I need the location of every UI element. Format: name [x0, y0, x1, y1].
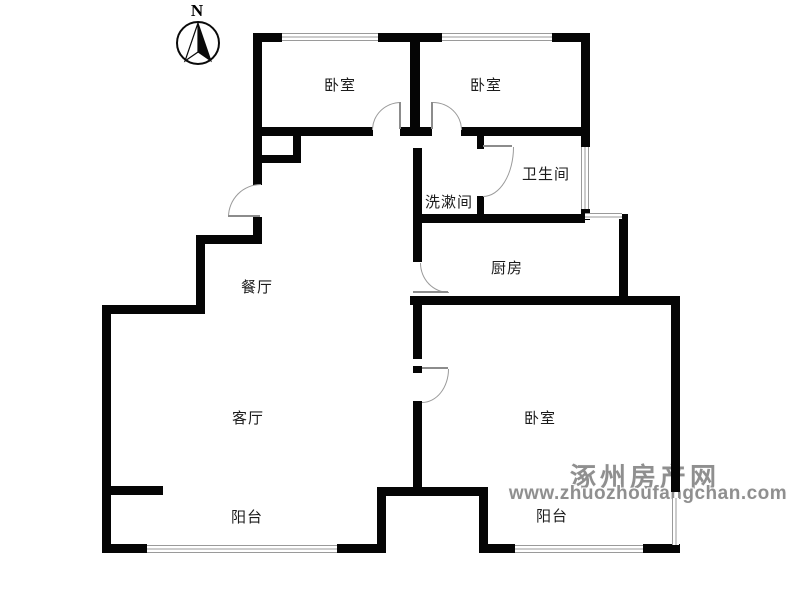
- door-arc-bathroom: [483, 147, 514, 197]
- wall-segment: [377, 487, 488, 496]
- room-label-bathroom: 卫生间: [522, 163, 570, 184]
- window-balcony-left: [147, 545, 337, 553]
- window-bedroom-b: [442, 33, 552, 42]
- wall-segment: [378, 33, 442, 42]
- wall-segment: [102, 305, 111, 553]
- wall-segment: [102, 486, 163, 495]
- wall-segment: [253, 155, 301, 163]
- door-arc-bedroom-b: [433, 102, 462, 130]
- wall-segment: [413, 148, 422, 262]
- wall-segment: [671, 296, 680, 492]
- wall-segment: [337, 544, 386, 553]
- room-label-bedroom-b: 卧室: [470, 74, 502, 95]
- door-leaf-bedroom-b: [431, 102, 433, 129]
- wall-segment: [461, 127, 590, 136]
- door-arc-bedroom-a: [372, 102, 401, 130]
- window-balcony-right: [515, 545, 643, 553]
- window-bedroom-a: [282, 33, 378, 42]
- wall-segment: [413, 214, 585, 223]
- floor-plan: 涿州房产网 www.zhuozhoufangchan.com N: [0, 0, 800, 600]
- wall-segment: [400, 127, 432, 136]
- wall-segment: [479, 544, 515, 553]
- door-leaf-kitchen: [413, 291, 448, 293]
- window-kitchen: [585, 213, 622, 219]
- wall-segment: [413, 366, 422, 373]
- room-label-dining: 餐厅: [241, 276, 273, 297]
- door-leaf-bedroom-a: [399, 102, 401, 129]
- door-arc-dining: [228, 184, 261, 217]
- compass-north-label: N: [191, 1, 203, 21]
- wall-segment: [253, 127, 373, 136]
- wall-segment: [413, 305, 422, 359]
- compass-icon: [175, 20, 221, 66]
- wall-segment: [410, 42, 420, 127]
- wall-segment: [253, 217, 262, 239]
- room-label-living: 客厅: [232, 407, 264, 428]
- wall-segment: [643, 544, 680, 553]
- window-balcony-right-side: [672, 498, 679, 545]
- wall-segment: [293, 136, 301, 157]
- wall-segment: [619, 214, 628, 305]
- window-bathroom: [581, 147, 589, 209]
- watermark-site-url: www.zhuozhoufangchan.com: [509, 483, 787, 505]
- wall-segment: [410, 296, 680, 305]
- room-label-balcony-left: 阳台: [231, 506, 263, 527]
- door-arc-kitchen: [420, 263, 449, 293]
- room-label-bedroom-c: 卧室: [524, 407, 556, 428]
- door-leaf-bedroom-c: [422, 367, 448, 369]
- wall-segment: [413, 401, 422, 490]
- wall-segment: [196, 235, 205, 313]
- door-leaf-bathroom: [483, 145, 512, 147]
- room-label-kitchen: 厨房: [491, 257, 523, 278]
- wall-segment: [102, 305, 205, 314]
- room-label-balcony-right: 阳台: [536, 505, 568, 526]
- room-label-washroom: 洗漱间: [425, 191, 473, 212]
- room-label-bedroom-a: 卧室: [324, 74, 356, 95]
- door-leaf-dining: [228, 215, 260, 217]
- door-arc-bedroom-c: [422, 369, 449, 403]
